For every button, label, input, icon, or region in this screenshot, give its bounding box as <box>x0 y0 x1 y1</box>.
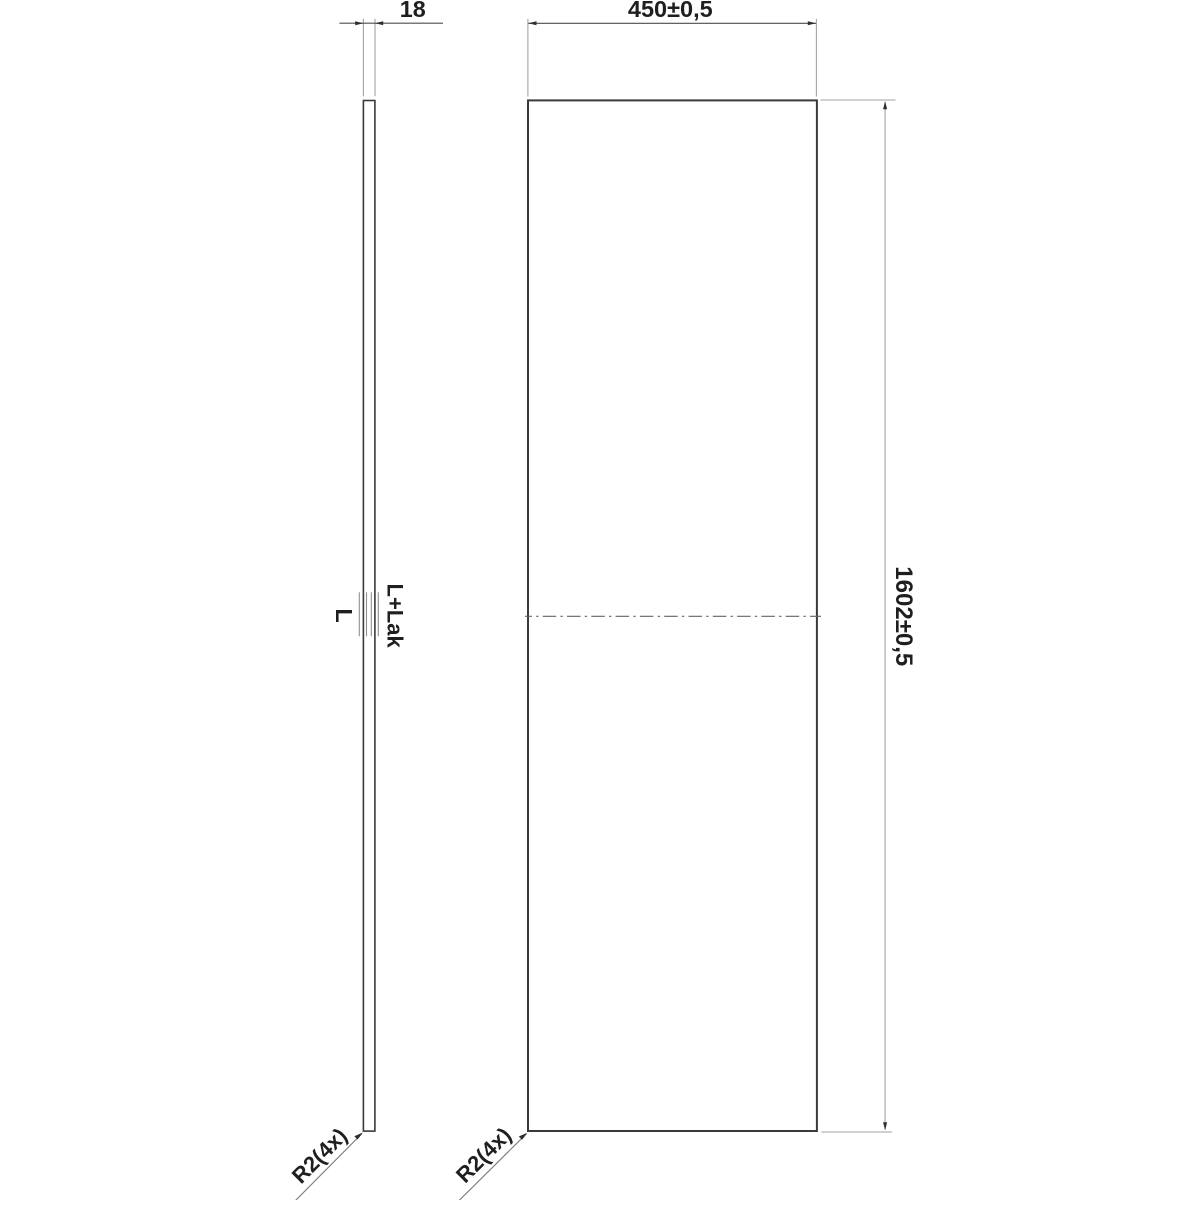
svg-text:L+Lak: L+Lak <box>383 584 408 649</box>
svg-text:18: 18 <box>400 0 426 22</box>
svg-text:450±0,5: 450±0,5 <box>628 0 713 22</box>
svg-text:L: L <box>331 609 357 623</box>
svg-text:1602±0,5: 1602±0,5 <box>890 566 917 666</box>
